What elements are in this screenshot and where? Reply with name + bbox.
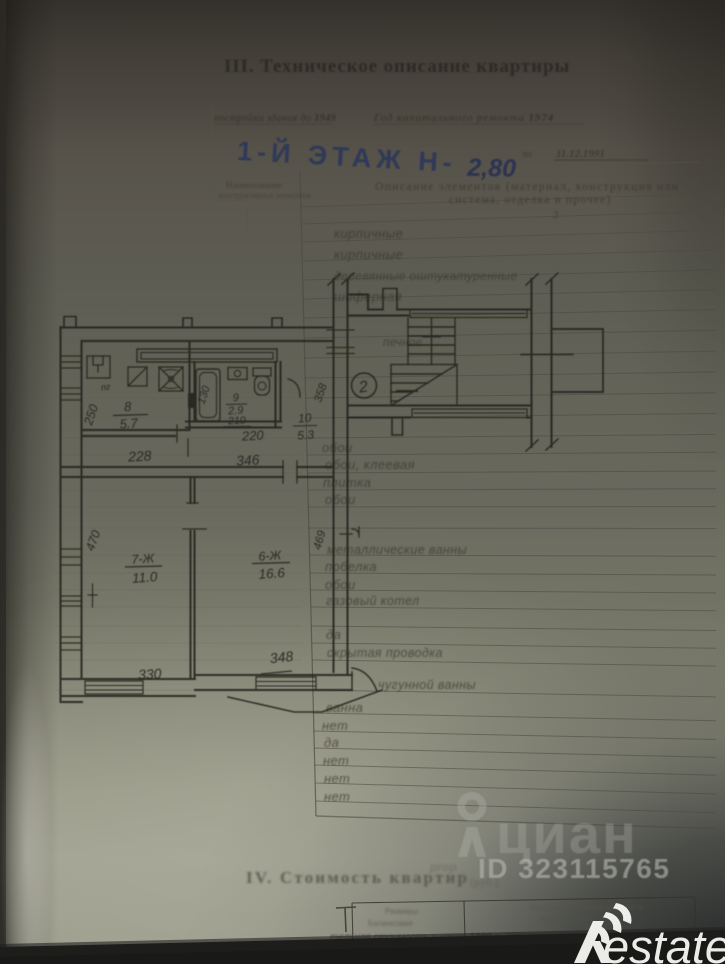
svg-text:III. Техническое описание ква: III. Техническое описание квартиры: [224, 56, 570, 77]
svg-text:деревянные оштукатуренные: деревянные оштукатуренные: [334, 269, 518, 283]
svg-text:2,80: 2,80: [466, 154, 516, 183]
svg-text:2: 2: [553, 209, 559, 221]
svg-text:обои, клеевая: обои, клеевая: [325, 457, 415, 472]
svg-text:5.7: 5.7: [119, 415, 139, 431]
svg-text:по: по: [522, 149, 532, 160]
svg-text:постройки здания до 1949: постройки здания до 1949: [214, 113, 336, 124]
svg-text:11.12.1991: 11.12.1991: [556, 148, 605, 160]
svg-text:нет: нет: [324, 789, 350, 804]
svg-text:estate: estate: [603, 920, 725, 964]
svg-text:скрытая проводка: скрытая проводка: [327, 646, 443, 660]
svg-text:prop: prop: [429, 860, 457, 874]
svg-text:9: 9: [232, 392, 239, 404]
svg-text:Год капитального ремонта 1974: Год капитального ремонта 1974: [373, 112, 554, 124]
svg-text:Описание элементов (материал,: Описание элементов (материал, конструкци…: [375, 181, 679, 193]
svg-text:печное: печное: [383, 337, 423, 349]
svg-text:228: 228: [127, 447, 152, 464]
svg-text:кирпичные: кирпичные: [334, 247, 403, 262]
svg-text:нет: нет: [323, 753, 349, 768]
svg-text:6-Ж: 6-Ж: [258, 548, 283, 564]
svg-text:кирпичные: кирпичные: [334, 226, 403, 241]
svg-text:Балансовая: Балансовая: [368, 919, 413, 928]
svg-text:Размеры: Размеры: [385, 907, 418, 916]
svg-text:16.6: 16.6: [258, 565, 286, 582]
svg-text:210: 210: [227, 415, 246, 428]
svg-text:348: 348: [269, 648, 294, 666]
svg-text:ванна: ванна: [326, 700, 363, 715]
svg-text:нет: нет: [324, 771, 350, 786]
svg-text:220: 220: [241, 427, 265, 443]
svg-text:обои: обои: [325, 492, 356, 507]
svg-text:система, отделка и прочее): система, отделка и прочее): [449, 194, 612, 206]
svg-text:Наименование: Наименование: [226, 180, 282, 190]
svg-text:обои: обои: [325, 577, 356, 592]
svg-text:газовый котел: газовый котел: [326, 594, 420, 608]
svg-text:чугунной ванны: чугунной ванны: [378, 678, 476, 692]
svg-text:да: да: [324, 735, 339, 750]
svg-text:5.3: 5.3: [297, 427, 315, 442]
svg-text:346: 346: [236, 451, 260, 468]
svg-text:330: 330: [138, 665, 162, 682]
svg-text:нет: нет: [322, 718, 348, 733]
svg-text:7-Ж: 7-Ж: [131, 551, 156, 567]
svg-text:ID 323115765: ID 323115765: [478, 853, 670, 884]
svg-text:конструктивных элементов: конструктивных элементов: [218, 191, 311, 200]
svg-text:11.0: 11.0: [132, 569, 159, 586]
svg-text:10: 10: [298, 411, 313, 426]
svg-text:в ценах 1969 г.: в ценах 1969 г.: [540, 914, 595, 923]
